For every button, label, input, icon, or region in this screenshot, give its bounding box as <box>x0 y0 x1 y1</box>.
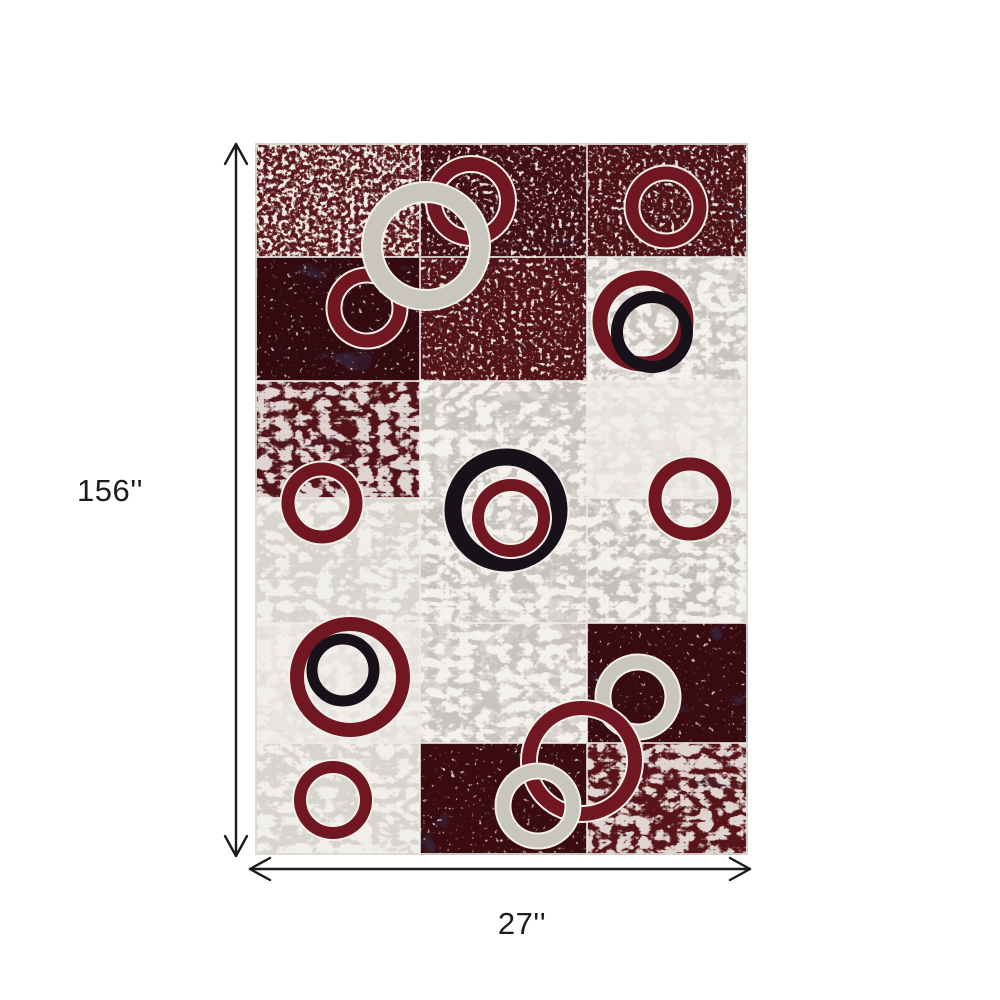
height-dimension-arrow <box>225 144 247 856</box>
width-dimension-label: 27'' <box>457 906 587 942</box>
rug-image <box>255 143 748 855</box>
height-dimension-label: 156'' <box>45 473 175 509</box>
width-dimension-arrow <box>250 858 750 880</box>
product-dimension-diagram: 156'' 27'' <box>0 0 1000 1000</box>
